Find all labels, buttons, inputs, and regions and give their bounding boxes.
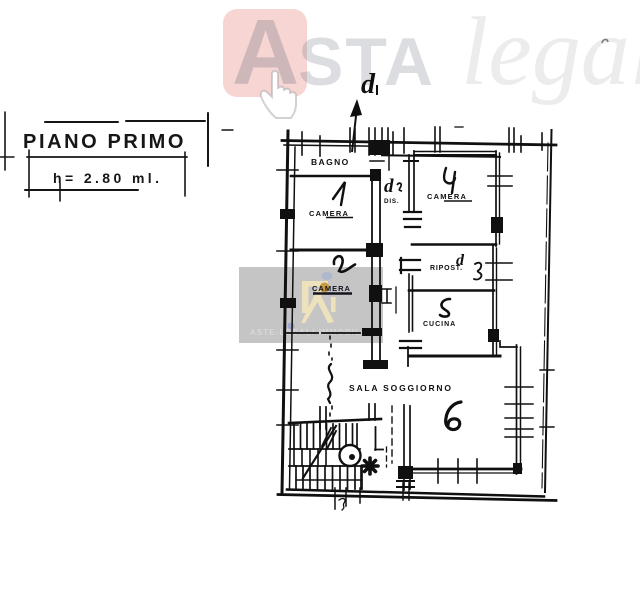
svg-text:CAMERA: CAMERA	[309, 209, 349, 218]
svg-text:legale: legale	[461, 0, 640, 106]
svg-text:d: d	[361, 69, 376, 100]
svg-text:CAMERA: CAMERA	[427, 192, 467, 201]
svg-text:CUCINA: CUCINA	[423, 321, 456, 328]
svg-text:d: d	[456, 252, 465, 269]
svg-text:h= 2.80 ml.: h= 2.80 ml.	[53, 170, 162, 186]
svg-text:d: d	[384, 176, 394, 197]
svg-text:PIANO PRIMO: PIANO PRIMO	[23, 131, 186, 153]
svg-text:BAGNO: BAGNO	[311, 157, 350, 167]
svg-text:SALA SOGGIORNO: SALA SOGGIORNO	[349, 383, 453, 393]
svg-text:DIS.: DIS.	[384, 198, 399, 205]
svg-text:CAMERA: CAMERA	[312, 284, 351, 293]
